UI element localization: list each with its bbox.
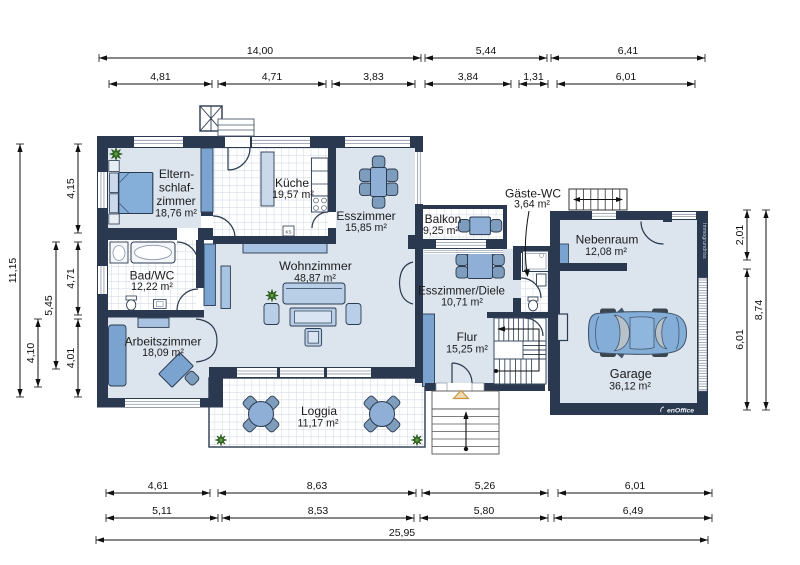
svg-text:8,53: 8,53: [308, 505, 329, 517]
svg-text:2,01: 2,01: [734, 225, 746, 246]
svg-text:Immogrundriss: Immogrundriss: [701, 223, 707, 259]
svg-text:4,01: 4,01: [65, 348, 77, 369]
svg-text:25,95: 25,95: [389, 527, 415, 539]
svg-text:Balkon: Balkon: [425, 212, 462, 226]
svg-text:4,10: 4,10: [25, 343, 37, 364]
svg-text:12,08 m²: 12,08 m²: [585, 246, 627, 258]
svg-text:6,41: 6,41: [618, 45, 639, 57]
svg-text:18,09 m²: 18,09 m²: [142, 347, 184, 359]
svg-text:5,44: 5,44: [476, 45, 497, 57]
svg-text:Wohnzimmer: Wohnzimmer: [279, 259, 352, 273]
svg-text:6,01: 6,01: [625, 480, 646, 492]
svg-text:3,84: 3,84: [458, 71, 479, 83]
svg-text:15,85 m²: 15,85 m²: [345, 222, 387, 234]
svg-text:Eltern-: Eltern-: [159, 167, 194, 181]
svg-text:9,25 m²: 9,25 m²: [423, 225, 459, 237]
svg-text:Flur: Flur: [457, 330, 478, 344]
svg-text:6,01: 6,01: [616, 71, 637, 83]
svg-text:5,45: 5,45: [43, 295, 55, 316]
svg-text:3,64 m²: 3,64 m²: [514, 199, 550, 211]
svg-text:4,15: 4,15: [65, 178, 77, 199]
svg-text:12,22 m²: 12,22 m²: [131, 281, 173, 293]
svg-text:Esszimmer: Esszimmer: [336, 209, 395, 223]
svg-text:5,26: 5,26: [475, 480, 496, 492]
svg-text:8,74: 8,74: [753, 300, 765, 321]
svg-text:11,17 m²: 11,17 m²: [297, 418, 338, 430]
svg-text:5,80: 5,80: [474, 505, 495, 517]
svg-text:48,87 m²: 48,87 m²: [294, 273, 336, 285]
svg-text:3,83: 3,83: [363, 71, 384, 83]
svg-text:4,71: 4,71: [262, 71, 283, 83]
svg-text:1,31: 1,31: [523, 71, 544, 83]
svg-text:KS: KS: [285, 230, 291, 235]
svg-text:36,12 m²: 36,12 m²: [609, 381, 651, 393]
svg-text:zimmer: zimmer: [156, 194, 195, 208]
svg-text:4,81: 4,81: [150, 71, 171, 83]
svg-text:5,11: 5,11: [152, 505, 172, 517]
svg-text:schlaf-: schlaf-: [159, 181, 194, 195]
svg-text:15,25 m²: 15,25 m²: [446, 344, 488, 356]
svg-text:Garage: Garage: [610, 367, 652, 381]
svg-text:18,76 m²: 18,76 m²: [155, 208, 197, 220]
svg-text:6,01: 6,01: [734, 329, 746, 350]
svg-text:8,63: 8,63: [307, 480, 328, 492]
svg-text:14,00: 14,00: [247, 45, 273, 57]
svg-text:11,15: 11,15: [7, 258, 19, 284]
svg-text:Loggia: Loggia: [301, 404, 337, 418]
svg-text:19,57 m²: 19,57 m²: [272, 189, 314, 201]
svg-text:10,71 m²: 10,71 m²: [441, 297, 483, 309]
svg-text:4,61: 4,61: [148, 480, 169, 492]
svg-text:enOffice: enOffice: [667, 408, 694, 415]
svg-text:4,71: 4,71: [65, 268, 77, 289]
svg-text:6,49: 6,49: [623, 505, 644, 517]
svg-text:Küche: Küche: [275, 176, 309, 190]
svg-text:Nebenraum: Nebenraum: [576, 233, 639, 247]
